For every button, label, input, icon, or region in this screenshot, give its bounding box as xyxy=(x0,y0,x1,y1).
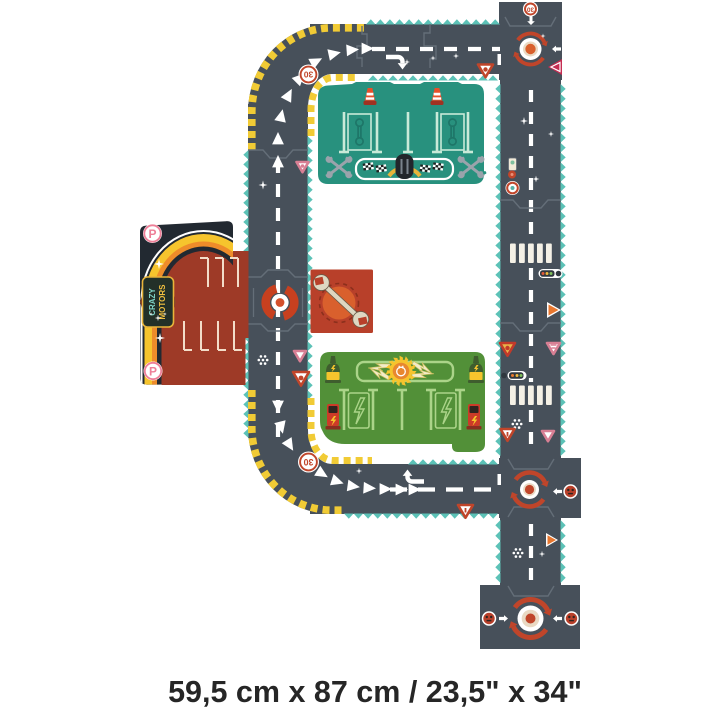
svg-text:P: P xyxy=(149,365,157,379)
svg-text:59,5 cm x 87 cm / 23,5" x 34": 59,5 cm x 87 cm / 23,5" x 34" xyxy=(168,675,582,709)
svg-text:30: 30 xyxy=(304,457,314,467)
svg-text:P: P xyxy=(148,227,156,241)
svg-text:30: 30 xyxy=(304,70,314,80)
svg-text:CRAZY: CRAZY xyxy=(148,288,157,316)
svg-text:30: 30 xyxy=(527,6,535,13)
